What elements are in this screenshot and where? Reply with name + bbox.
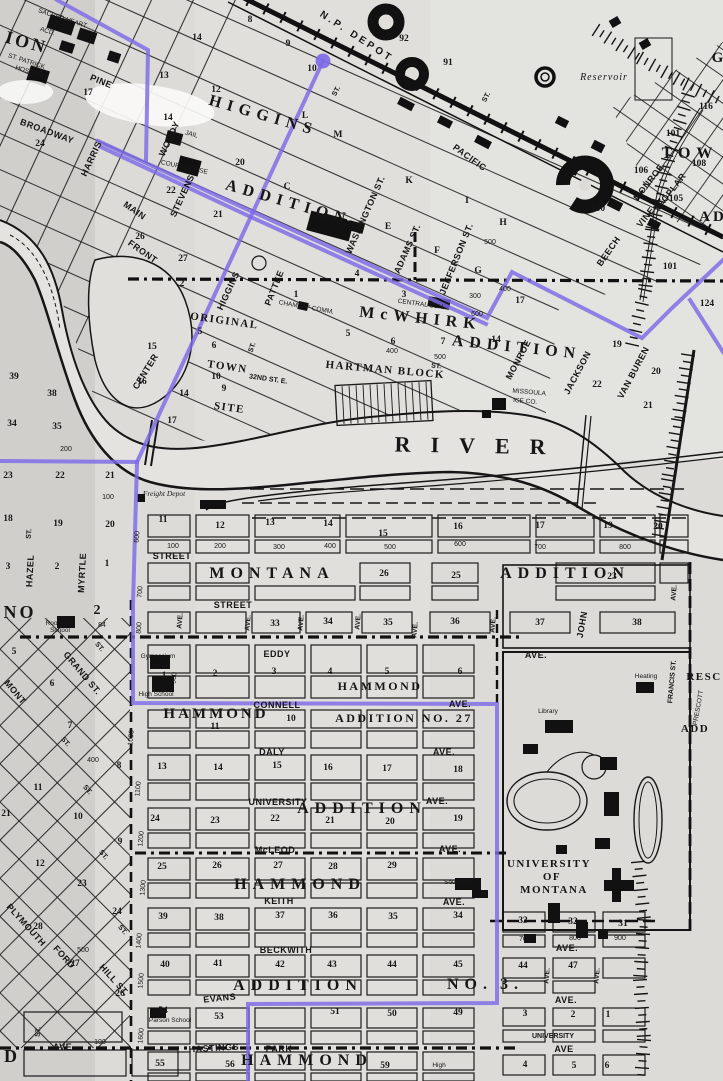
hachure-tick [639,1029,647,1030]
map-label: AVE. [556,943,578,953]
map-label: EDDY [263,649,290,659]
map-label: 6 [50,679,55,689]
map-label: 3. [500,976,524,993]
river-islet [252,256,266,270]
hachure-tick [644,264,652,265]
map-label: 11 [211,722,220,732]
map-label: 13 [159,71,169,81]
map-label: 34 [323,617,333,627]
map-label: 20 [653,522,663,532]
map-label: 100 [102,494,114,501]
map-label: 17 [535,521,545,531]
building-footprint [545,720,573,733]
map-label: 41 [213,959,223,969]
map-label: 16 [323,763,333,773]
map-label: Heating [635,673,658,680]
building-footprint [604,792,619,816]
map-label: 23 [210,816,220,826]
map-label: 2 [571,1010,576,1020]
map-label: TOW [662,145,719,162]
map-label: 5 [572,1061,577,1071]
map-label: 22 [270,814,280,824]
map-label: DALY [259,747,285,757]
map-label: 12 [211,85,221,95]
map-label: 53 [214,1012,224,1022]
map-label: 14 [323,519,333,529]
hachure-tick [637,1035,651,1036]
map-label: 10 [286,714,296,724]
map-label: McLEOD [255,845,296,855]
map-label: 35 [388,912,398,922]
map-label: 1100 [134,781,142,797]
map-label: AVE. [443,897,465,907]
map-label: OF [543,871,561,883]
map-label: UNIVERSITY [248,797,307,807]
map-label: AVE. [433,747,455,757]
map-label: 23 [77,879,87,889]
map-label: 200 [214,543,226,550]
streetcar-route-line [0,461,137,462]
map-viewport: IONHIGGINSADDITIONMcWHIRKADDITIONRIVERMO… [0,0,723,1081]
map-label: Reservoir [579,72,628,83]
map-label: 6 [391,337,396,347]
map-label: 500 [484,239,496,246]
map-label: 106 [634,166,649,176]
map-label: 1 [606,1010,611,1020]
map-label: ST. [35,1026,43,1037]
map-label: 600 [134,531,142,543]
map-label: Plant [637,686,652,693]
map-label: Roosevelt [46,620,75,627]
map-label: AVE. [411,622,419,638]
map-label: 9 [222,384,227,394]
map-label: 17 [382,764,392,774]
hachure-tick [634,961,648,962]
map-label: 15 [378,529,388,539]
map-label: 18 [3,514,13,524]
hachure-tick [636,934,650,935]
map-label: 13 [265,518,275,528]
map-label: 16 [453,522,463,532]
map-label: AVE. [354,614,362,630]
map-label: 200 [60,446,72,453]
map-label: 14 [213,763,223,773]
roundhouse-3-center [579,179,591,191]
hachure-tick [636,987,644,988]
map-label: I [465,196,469,206]
map-label: 600 [454,541,466,548]
map-label: 800 [569,935,581,942]
map-label: 21 [213,210,223,220]
map-label: K [405,176,413,186]
map-label: 14 [491,335,501,345]
map-label: M [334,130,343,140]
map-label: MONTANA [520,884,588,896]
map-label: 20 [235,158,245,168]
map-label: 10 [211,372,221,382]
map-label: AD [699,209,723,225]
map-label: 35 [52,422,62,432]
map-label: 12 [35,859,45,869]
map-label: 27 [273,861,283,871]
building-footprint [523,744,538,754]
map-label: 6 [605,1061,610,1071]
map-label: AVE. [555,995,577,1005]
map-label: G [474,266,482,276]
map-label: 2 [94,603,101,618]
map-label: 17 [83,88,93,98]
map-label: 14 [192,33,202,43]
hachure-tick [646,250,654,251]
map-label: AVE. [53,1042,75,1052]
map-label: 34 [453,911,463,921]
map-label: 400 [324,543,336,550]
map-label: 108 [692,159,707,169]
building-footprint [600,757,617,770]
hachure-tick [635,869,643,870]
map-label: NO. [447,976,493,993]
map-label: 26 [135,232,145,242]
map-label: 19 [612,340,622,350]
map-label: 45 [453,960,463,970]
map-label: 9 [286,39,291,49]
map-label: 20 [105,520,115,530]
map-label: 39 [9,372,19,382]
map-label: HAZEL [24,554,36,587]
map-label: Gymnasium [141,653,176,660]
map-label: CONNELL [254,700,301,710]
map-label: 600 [471,311,483,318]
hachure-tick [640,927,648,928]
map-label: 800 [136,622,144,634]
map-label: 44 [387,960,397,970]
map-label: 91 [443,58,453,68]
map-label: 6 [458,667,463,677]
map-label: 900 [614,935,626,942]
map-label: AVE. [244,615,252,631]
map-label: L [302,111,308,121]
hachure-tick [635,1007,649,1008]
map-label: 21 [105,471,115,481]
map-label: 4 [523,1060,528,1070]
map-label: 13 [157,762,167,772]
map-label: 14 [163,113,173,123]
map-label: 1600 [137,1028,145,1044]
map-label: UNIVERSITY [532,1033,574,1040]
map-label: 2 [55,562,60,572]
map-label: G [712,50,723,66]
map-label: 55 [155,1059,165,1069]
map-label: 10 [73,812,83,822]
map-label: 400 [499,286,511,293]
map-label: 5 [12,647,17,657]
map-label: 15 [147,342,157,352]
map-label: 23 [3,471,13,481]
map-label: 25 [451,571,461,581]
map-label: 43 [327,960,337,970]
map-label: 24 [35,139,45,149]
hachure-tick [638,955,646,956]
map-label: 18 [453,765,463,775]
map-label: AVE. [439,844,461,854]
map-label: 12 [215,521,225,531]
map-label: 9 [118,837,123,847]
map-label: HAMMOND [338,679,423,693]
hachure-tick [638,896,646,897]
map-label: 500 [384,544,396,551]
map-label: ADDITION [297,800,427,817]
building-footprint [200,500,226,509]
map-label: AVE. [449,699,471,709]
map-label: 24 [150,814,160,824]
map-label: 92 [399,34,409,44]
map-label: 400 [87,757,99,764]
map-label: 1500 [137,973,145,989]
map-label: 5 [198,327,203,337]
map-label: 28 [328,862,338,872]
map-label: 400 [386,348,398,355]
hachure-tick [638,1015,646,1016]
map-label: 29 [387,861,397,871]
map-label: 34 [7,419,17,429]
map-label: 1 [162,671,167,681]
map-label: 23 [607,572,617,582]
map-label: 24 [112,907,122,917]
hachure-tick [633,980,647,981]
map-label: RIVER [394,432,565,460]
map-label: AVE. [489,617,497,633]
map-label: 100 [167,543,179,550]
map-label: 33 [518,916,528,926]
map-label: 20 [651,367,661,377]
map-label: 3 [402,290,407,300]
map-label: 6 [212,341,217,351]
map-label: AVE. [176,613,184,629]
map-label: ADDITION NO. 27 [335,711,473,725]
map-label: 38 [214,913,224,923]
building-footprint [556,845,567,854]
map-label: Parson School [149,1017,192,1024]
map-label: 1200 [137,831,145,847]
hachure-tick [639,941,647,942]
map-label: 21 [1,809,11,819]
hachure-tick [637,969,645,970]
map-label: 36 [328,911,338,921]
map-label: South Hall [444,879,475,886]
map-label: 700 [519,936,531,943]
building-footprint [492,398,506,410]
map-label: 3 [523,1009,528,1019]
map-label: 700 [137,586,145,598]
map-label: 26 [379,569,389,579]
map-label: 4 [355,269,360,279]
map-label: 3 [272,667,277,677]
map-label: 21 [643,401,653,411]
map-label: 11 [34,783,43,793]
map-label: 5 [385,667,390,677]
map-label: 40 [160,960,170,970]
map-label: 1400 [135,933,143,949]
map-label: AVE [554,1044,573,1054]
hachure-tick [638,1061,646,1062]
hachure-tick [639,1047,647,1048]
map-label: AVE. [525,650,547,660]
map-label: 49 [453,1008,463,1018]
map-label: 17 [515,296,525,306]
map-label: 8 [117,761,122,771]
map-label: C [284,182,291,192]
map-label: 1 [294,290,299,300]
building-footprint [598,930,608,939]
map-label: 124 [700,299,715,309]
hachure-tick [636,882,644,883]
map-label: 1000 [127,730,135,746]
map-label: 19 [603,521,613,531]
map-label: 38 [47,389,57,399]
map-label: 32 [568,917,578,927]
section-line-h1 [128,279,723,281]
map-label: 54 [158,1006,168,1016]
map-label: 500 [434,354,446,361]
map-label: 700 [534,544,546,551]
map-label: Library [538,708,559,715]
map-label: 22 [592,380,602,390]
map-label: Freight Depot [142,489,186,498]
map-label: 4 [328,667,333,677]
map-label: AVE. [543,968,551,984]
map-label: 31 [618,919,628,929]
map-label: 36 [450,617,460,627]
map-label: PARK [266,1044,293,1054]
map-label: 19 [53,519,63,529]
map-label: 37 [275,911,285,921]
map-label: 26 [212,861,222,871]
map-label: STREET [153,551,192,561]
map-label: 3 [6,562,11,572]
hachure-tick [639,910,647,911]
map-label: 38 [632,618,642,628]
map-label: School [50,627,70,634]
map-label: D [4,1046,20,1066]
map-label: 7 [441,337,446,347]
map-label: 33 [270,619,280,629]
map-label: 42 [275,960,285,970]
map-label: 116 [699,102,713,112]
map-label: 47 [568,961,578,971]
map-label: 25 [157,862,167,872]
map-label: 100 [591,204,606,214]
map-label: 100 [94,1039,106,1046]
map-label: KEITH [264,896,294,906]
map-label: NO [4,602,37,622]
map-label: RESC [686,671,721,683]
map-label: H [499,218,507,228]
map-label: 14 [179,389,189,399]
hachure-tick [642,278,650,279]
map-label: F [434,246,440,256]
map-label: ST. [26,528,34,539]
map-label: 84 [98,622,106,629]
map-label: 20 [385,817,395,827]
map-label: 15 [272,761,282,771]
city-plat-map: IONHIGGINSADDITIONMcWHIRKADDITIONRIVERMO… [0,0,723,1081]
map-label: E [385,222,391,232]
hachure-tick [634,994,648,995]
map-label: 28 [33,922,43,932]
map-label: 1 [105,559,110,569]
hachure-tick [635,947,649,948]
map-label: 37 [535,618,545,628]
map-label: UNIVERSITY [507,858,591,870]
map-label: 7 [68,721,73,731]
map-label: 2 [180,279,185,289]
map-label: 900 [171,672,179,684]
map-label: 101 [663,262,678,272]
map-label: 300 [469,293,481,300]
hachure-tick [637,1001,645,1002]
map-label: AVE. [426,796,448,806]
map-label: 8 [248,15,253,25]
hachure-tick [633,975,647,976]
map-label: 50 [387,1009,397,1019]
map-label: AVE. [593,968,601,984]
map-label: 51 [330,1007,340,1017]
map-label: AVE. [670,585,678,601]
map-label: 44 [518,961,528,971]
map-label: 11 [159,515,168,525]
map-label: High [432,1062,446,1069]
map-label: 56 [225,1060,235,1070]
building-footprint [482,410,491,418]
map-label: STREET [214,600,253,610]
hachure-tick [647,236,655,237]
map-label: 101 [666,129,681,139]
map-label: 21 [325,816,335,826]
hachure-tick [637,1075,645,1076]
map-label: AVE. [297,615,305,631]
map-label: 59 [380,1061,390,1071]
map-label: 300 [273,544,285,551]
map-label: 27 [70,959,80,969]
map-label: 2 [213,669,218,679]
building-footprint [472,890,488,898]
map-label: 16 [137,377,147,387]
map-label: 35 [383,618,393,628]
map-label: 1300 [139,880,147,896]
map-label: 22 [166,186,176,196]
map-label: HAMMOND [234,876,366,893]
map-label: 26 [115,989,125,999]
map-label: 5 [346,329,351,339]
map-label: 500 [77,947,89,954]
map-label: 10 [307,64,317,74]
map-label: ST. [431,363,442,371]
map-label: BECKWITH [260,945,313,955]
map-label: 800 [619,544,631,551]
map-label: 27 [178,254,188,264]
map-label: 17 [167,416,177,426]
map-label: 39 [158,912,168,922]
hachure-tick [636,1021,650,1022]
map-label: 19 [453,814,463,824]
map-label: ADDITION [233,977,363,994]
map-label: High School [138,691,174,698]
map-label: MONTANA [209,565,334,582]
map-label: 22 [55,471,65,481]
map-label: 105 [669,194,684,204]
building-footprint [612,868,621,902]
route-start-marker [316,54,331,69]
